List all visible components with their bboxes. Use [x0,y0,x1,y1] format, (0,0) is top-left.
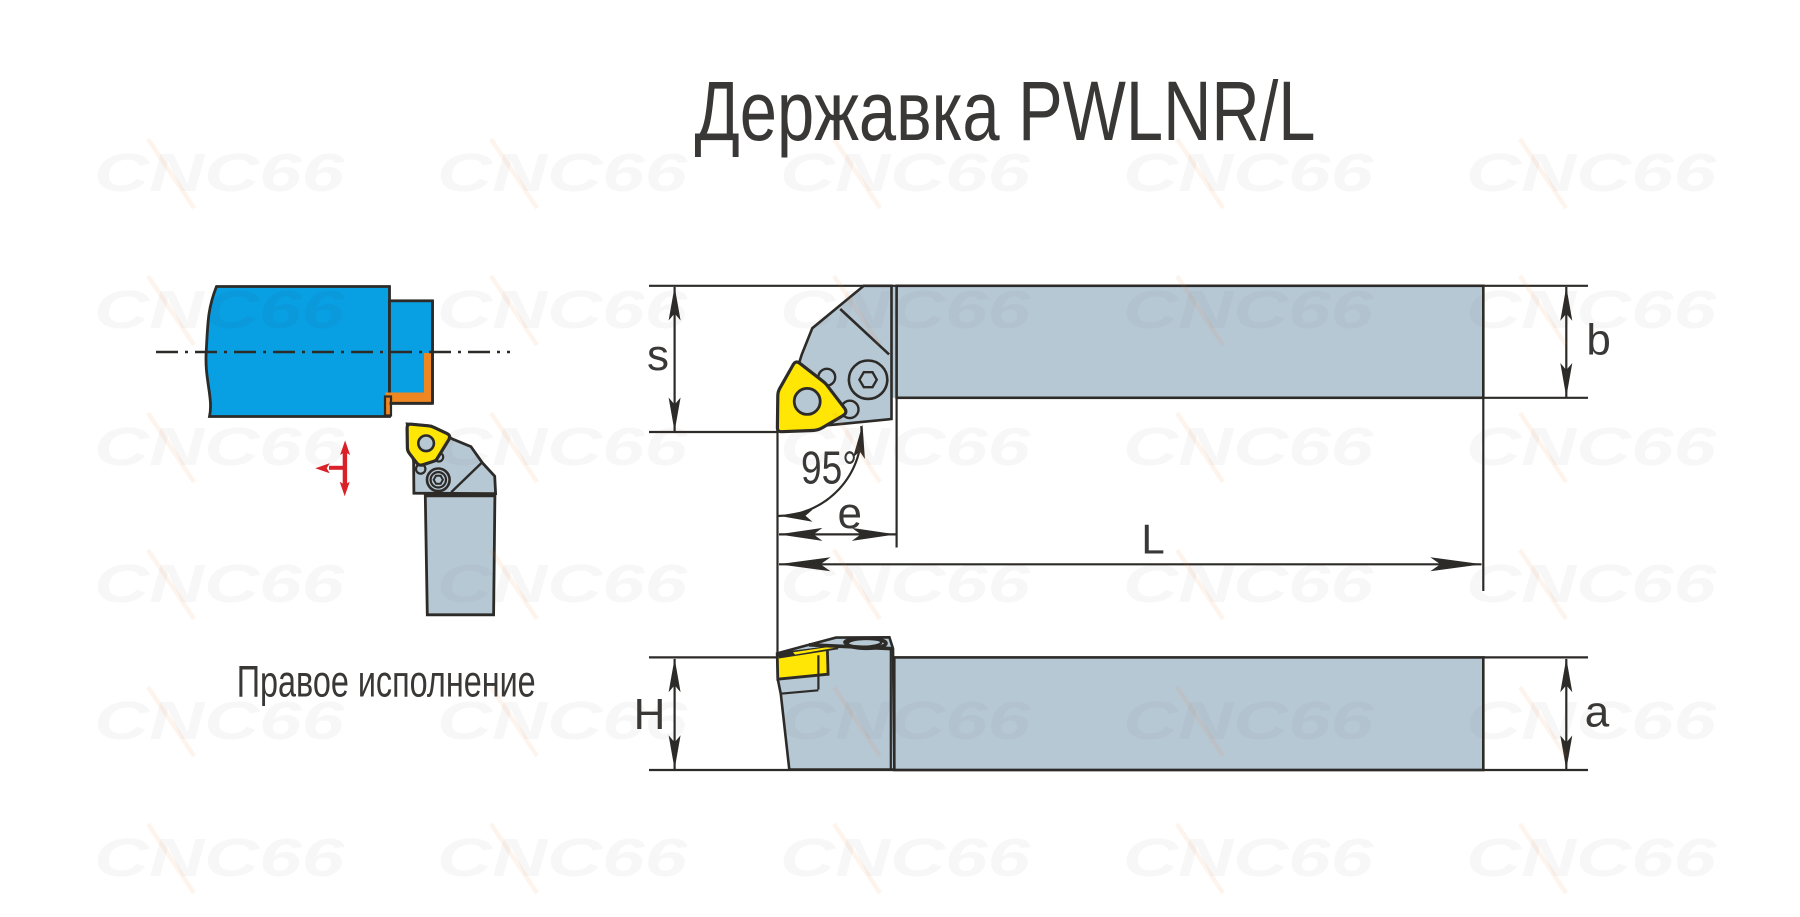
svg-text:CNC66: CNC66 [780,554,1031,614]
svg-text:CNC66: CNC66 [437,691,688,751]
svg-text:CNC66: CNC66 [780,691,1031,751]
svg-text:CNC66: CNC66 [1466,554,1717,614]
svg-text:CNC66: CNC66 [1466,143,1717,203]
svg-text:CNC66: CNC66 [437,143,688,203]
svg-text:CNC66: CNC66 [1123,417,1374,477]
svg-text:CNC66: CNC66 [1123,828,1374,888]
svg-text:CNC66: CNC66 [780,143,1031,203]
svg-text:CNC66: CNC66 [437,554,688,614]
svg-text:CNC66: CNC66 [94,828,345,888]
svg-text:e: e [838,489,862,538]
svg-text:CNC66: CNC66 [1466,417,1717,477]
svg-text:CNC66: CNC66 [1123,143,1374,203]
svg-text:CNC66: CNC66 [94,143,345,203]
svg-text:CNC66: CNC66 [780,417,1031,477]
svg-text:CNC66: CNC66 [94,691,345,751]
svg-text:CNC66: CNC66 [94,554,345,614]
svg-text:CNC66: CNC66 [1466,828,1717,888]
svg-text:CNC66: CNC66 [780,828,1031,888]
svg-text:CNC66: CNC66 [94,280,345,340]
svg-text:CNC66: CNC66 [437,828,688,888]
svg-text:CNC66: CNC66 [437,417,688,477]
svg-text:CNC66: CNC66 [437,280,688,340]
svg-text:CNC66: CNC66 [1466,691,1717,751]
svg-text:CNC66: CNC66 [780,280,1031,340]
svg-text:CNC66: CNC66 [1123,691,1374,751]
svg-text:CNC66: CNC66 [1123,280,1374,340]
svg-text:CNC66: CNC66 [94,417,345,477]
svg-text:CNC66: CNC66 [1466,280,1717,340]
svg-text:CNC66: CNC66 [1123,554,1374,614]
